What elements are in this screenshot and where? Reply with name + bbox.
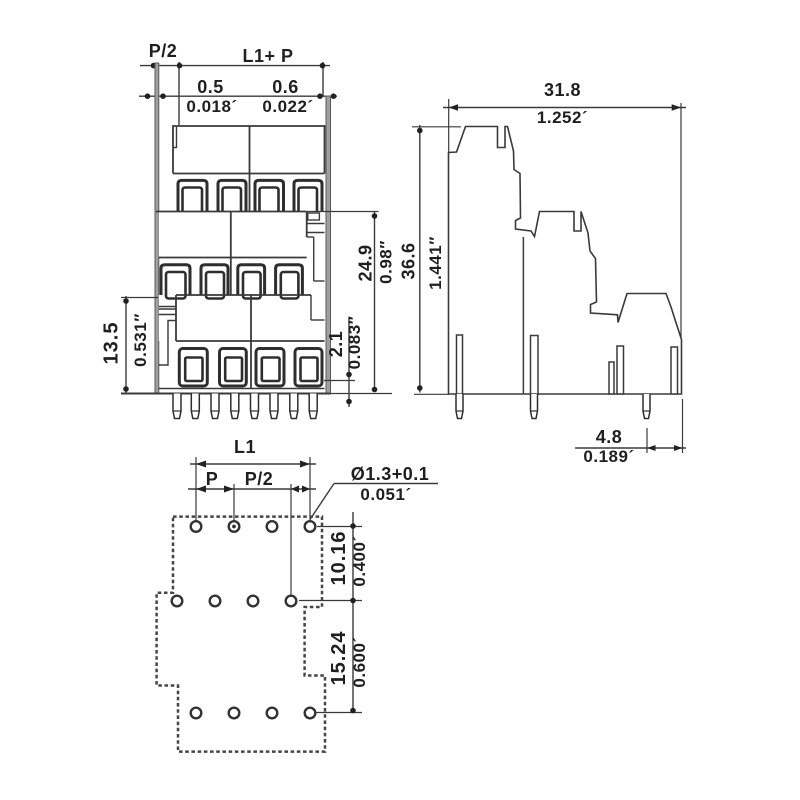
svg-text:P: P xyxy=(206,469,219,489)
svg-text:0.189´: 0.189´ xyxy=(583,447,634,466)
svg-text:0.083″: 0.083″ xyxy=(345,316,364,370)
svg-text:4.8: 4.8 xyxy=(596,427,623,447)
svg-text:0.531″: 0.531″ xyxy=(131,313,150,367)
svg-text:13.5: 13.5 xyxy=(101,322,123,365)
svg-text:0.6: 0.6 xyxy=(272,77,299,97)
svg-text:2.1: 2.1 xyxy=(326,331,346,358)
svg-text:P/2: P/2 xyxy=(149,41,178,61)
svg-text:0.98″: 0.98″ xyxy=(377,240,396,284)
svg-text:1.252´: 1.252´ xyxy=(537,108,588,127)
svg-text:0.400´: 0.400´ xyxy=(350,535,369,586)
svg-text:0.5: 0.5 xyxy=(197,77,224,97)
svg-text:0.600´: 0.600´ xyxy=(350,636,369,687)
svg-text:10.16: 10.16 xyxy=(328,530,350,585)
svg-text:P/2: P/2 xyxy=(245,469,274,489)
svg-text:Ø1.3+0.1: Ø1.3+0.1 xyxy=(351,464,430,484)
svg-text:24.9: 24.9 xyxy=(356,244,376,281)
svg-text:0.018´: 0.018´ xyxy=(186,97,237,116)
svg-text:31.8: 31.8 xyxy=(544,80,581,100)
svg-text:L1: L1 xyxy=(234,437,256,457)
svg-text:1.441″: 1.441″ xyxy=(426,236,445,290)
svg-text:15.24: 15.24 xyxy=(328,630,350,685)
svg-text:0.022´: 0.022´ xyxy=(262,97,313,116)
svg-text:36.6: 36.6 xyxy=(399,242,419,279)
svg-text:0.051´: 0.051´ xyxy=(360,485,411,504)
svg-text:L1+ P: L1+ P xyxy=(242,46,293,66)
